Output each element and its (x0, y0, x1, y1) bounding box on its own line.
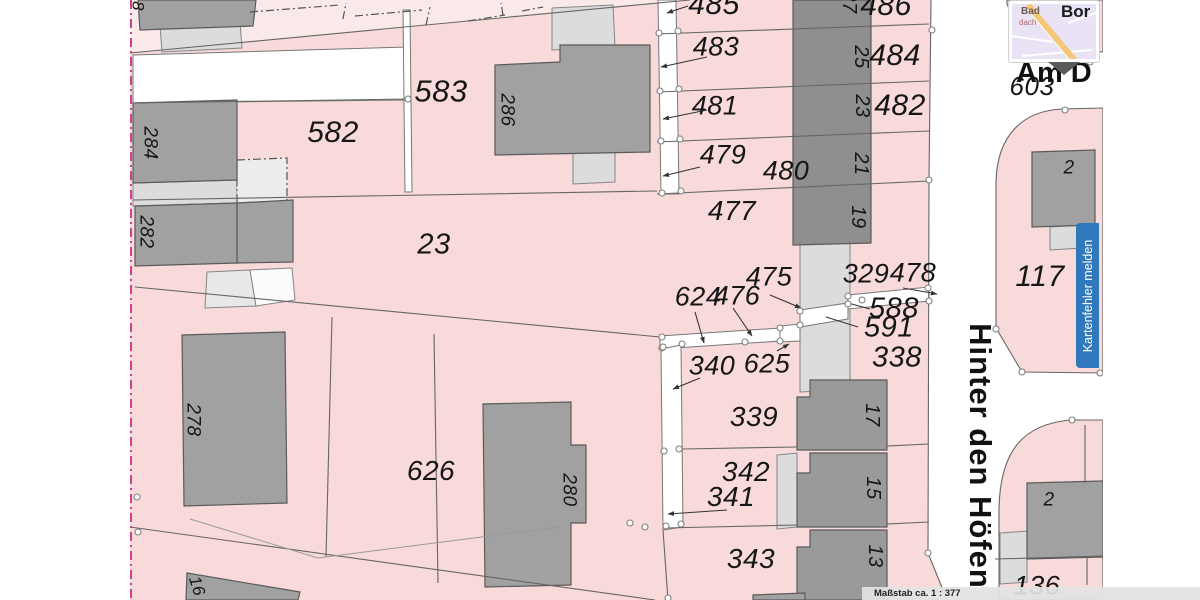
parcel-label: 478 (890, 260, 937, 287)
scale-indicator: Maßstab ca. 1 : 377 (862, 587, 1200, 600)
report-map-error-label: Kartenfehler melden (1081, 239, 1095, 352)
parcel-label: 483 (693, 34, 740, 61)
parcel-label: 481 (692, 93, 739, 120)
parcel-label: 13 (865, 544, 885, 567)
report-map-error-button[interactable]: Kartenfehler melden (1076, 223, 1099, 368)
parcel-label: 343 (727, 545, 775, 573)
parcel-label: 15 (863, 476, 883, 499)
map-graphics (0, 0, 1103, 600)
parcel-label: 8 (130, 1, 147, 11)
parcel-label: 591 (864, 314, 914, 343)
mini-map-town-label-partial: dach (1019, 18, 1036, 27)
mini-map-town-label: Bad (1021, 6, 1040, 17)
map-viewport[interactable]: 4854862748348425481482234794802147719329… (0, 0, 1103, 600)
parcel-label: 624 (675, 284, 722, 311)
parcel-label: 25 (851, 45, 871, 68)
parcel-label: 484 (869, 41, 921, 71)
parcel-label: 17 (862, 403, 882, 426)
map-preview-popup[interactable]: Bad dach Bor (1008, 0, 1100, 63)
parcel-label: 339 (730, 403, 778, 431)
parcel-label: 23 (417, 231, 450, 260)
parcel-label: 341 (707, 483, 755, 511)
parcel-label: 477 (708, 197, 756, 225)
popup-pointer-icon (1048, 62, 1080, 75)
parcel-label: 625 (744, 351, 791, 378)
parcel-label: 19 (848, 205, 868, 228)
parcel-label: 582 (307, 118, 359, 148)
parcel-label: 117 (1015, 262, 1064, 292)
parcel-label: 286 (498, 93, 517, 126)
mini-map: Bad dach Bor (1012, 4, 1096, 59)
parcel-label: 479 (700, 142, 747, 169)
parcel-label: 280 (560, 473, 579, 506)
parcel-label: 583 (414, 76, 467, 107)
parcel-label: 329 (843, 261, 890, 288)
parcel-label: 2 (1063, 159, 1074, 178)
parcel-label: 21 (851, 152, 871, 175)
parcel-label: 23 (852, 94, 872, 117)
parcel-label: 340 (689, 353, 736, 380)
parcel-label: 485 (688, 0, 740, 20)
parcel-label: 282 (137, 215, 156, 248)
parcel-label: 486 (860, 0, 912, 21)
parcel-label: 626 (407, 457, 455, 485)
parcel-label: 278 (184, 403, 203, 436)
mini-map-city-label: Bor (1061, 4, 1090, 22)
cadastral-map-page: 4854862748348425481482234794802147719329… (0, 0, 1200, 600)
street-name-hinter-den-hoefen: Hinter den Höfen (962, 323, 998, 589)
parcel-label: 480 (763, 158, 810, 185)
parcel-label: 284 (141, 126, 160, 159)
scale-text: Maßstab ca. 1 : 377 (874, 588, 961, 599)
parcel-label: 2 (1043, 491, 1054, 510)
parcel-label: 27 (839, 0, 859, 14)
parcel-label: 338 (872, 344, 922, 373)
parcel-label: 482 (874, 91, 926, 121)
